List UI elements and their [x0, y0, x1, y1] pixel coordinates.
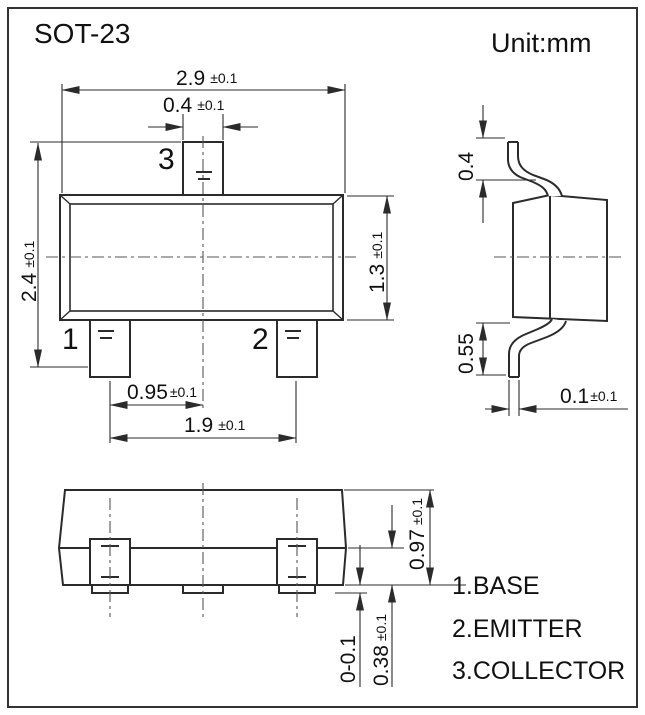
- svg-text:0.55: 0.55: [455, 333, 478, 374]
- svg-text:0.95±0.1: 0.95±0.1: [127, 381, 197, 404]
- svg-text:0.38±0.1: 0.38±0.1: [370, 614, 393, 686]
- unit-label: Unit:mm: [491, 28, 592, 58]
- dim-foot-length: 0.38±0.1: [370, 505, 393, 687]
- svg-text:0.4±0.1: 0.4±0.1: [163, 94, 225, 117]
- dim-body-height-value: 1.3: [366, 264, 389, 293]
- dim-foot-length-tol: ±0.1: [373, 614, 389, 641]
- dim-foot-length-value: 0.38: [370, 645, 393, 686]
- bottom-view: 0.97±0.1 0.38±0.1 0-0.1: [59, 483, 466, 687]
- dim-overall-width-value: 2.9: [176, 67, 205, 90]
- dim-body-height-tol: ±0.1: [369, 231, 385, 258]
- front-pin1: [90, 320, 130, 377]
- svg-text:0.1±0.1: 0.1±0.1: [560, 385, 618, 408]
- dim-tab-width-value: 0.4: [163, 94, 193, 117]
- dim-body-height: 1.3±0.1: [347, 196, 394, 320]
- svg-text:1.9±0.1: 1.9±0.1: [184, 414, 246, 437]
- dim-bottom-height-value: 0.97: [406, 529, 429, 570]
- side-top-lead: [508, 142, 562, 196]
- dim-overall-height-tol: ±0.1: [21, 240, 37, 267]
- bottom-extension-lines: [335, 490, 466, 593]
- dim-tab-width-tol: ±0.1: [197, 97, 224, 113]
- dim-pin-pitch-tol: ±0.1: [170, 384, 197, 400]
- front-pin2: [277, 320, 317, 377]
- front-view: 2.9±0.1 0.4±0.1 2.4±0.1 1.3±0.1: [18, 67, 394, 443]
- dim-pin-span-value: 1.9: [184, 414, 213, 437]
- svg-text:1.3±0.1: 1.3±0.1: [366, 231, 389, 293]
- legend-base: 1.BASE: [452, 572, 540, 600]
- front-pin3-label: 3: [158, 143, 175, 176]
- drawing-title: SOT-23: [34, 18, 130, 49]
- legend-collector: 3.COLLECTOR: [452, 657, 625, 685]
- dim-lead-width-value: 0.4: [455, 151, 478, 181]
- dim-lead-length: 0.55: [455, 323, 510, 375]
- dim-pin-span-tol: ±0.1: [218, 417, 245, 433]
- svg-text:0-0.1: 0-0.1: [337, 635, 360, 683]
- sot23-package-drawing: SOT-23 Unit:mm: [0, 0, 645, 715]
- dim-overall-height-value: 2.4: [18, 272, 41, 302]
- dim-bottom-height: 0.97±0.1: [406, 490, 430, 585]
- front-pin2-label: 2: [252, 323, 269, 356]
- dim-bottom-height-tol: ±0.1: [409, 498, 425, 525]
- legend-emitter: 2.EMITTER: [452, 615, 583, 643]
- dim-overall-width-tol: ±0.1: [210, 70, 237, 86]
- dim-lead-thickness-value: 0.1: [560, 385, 589, 408]
- dim-lead-thickness-tol: ±0.1: [590, 388, 617, 404]
- side-view: 0.4 0.55 0.1±0.1: [455, 105, 628, 416]
- dim-lead-thickness: 0.1±0.1: [485, 380, 628, 416]
- svg-text:0.97±0.1: 0.97±0.1: [406, 498, 429, 570]
- svg-text:2.9±0.1: 2.9±0.1: [176, 67, 238, 90]
- dim-lead-length-value: 0.55: [455, 333, 478, 374]
- front-pin1-label: 1: [62, 323, 79, 356]
- dim-pin-pitch-value: 0.95: [127, 381, 168, 404]
- pin-legend: 1.BASE 2.EMITTER 3.COLLECTOR: [452, 572, 625, 685]
- dim-tab-width: 0.4±0.1: [148, 94, 258, 140]
- side-body: [513, 195, 607, 321]
- svg-text:0.4: 0.4: [455, 151, 478, 181]
- dim-standoff-value: 0-0.1: [337, 635, 360, 683]
- side-bottom-lead: [509, 319, 566, 377]
